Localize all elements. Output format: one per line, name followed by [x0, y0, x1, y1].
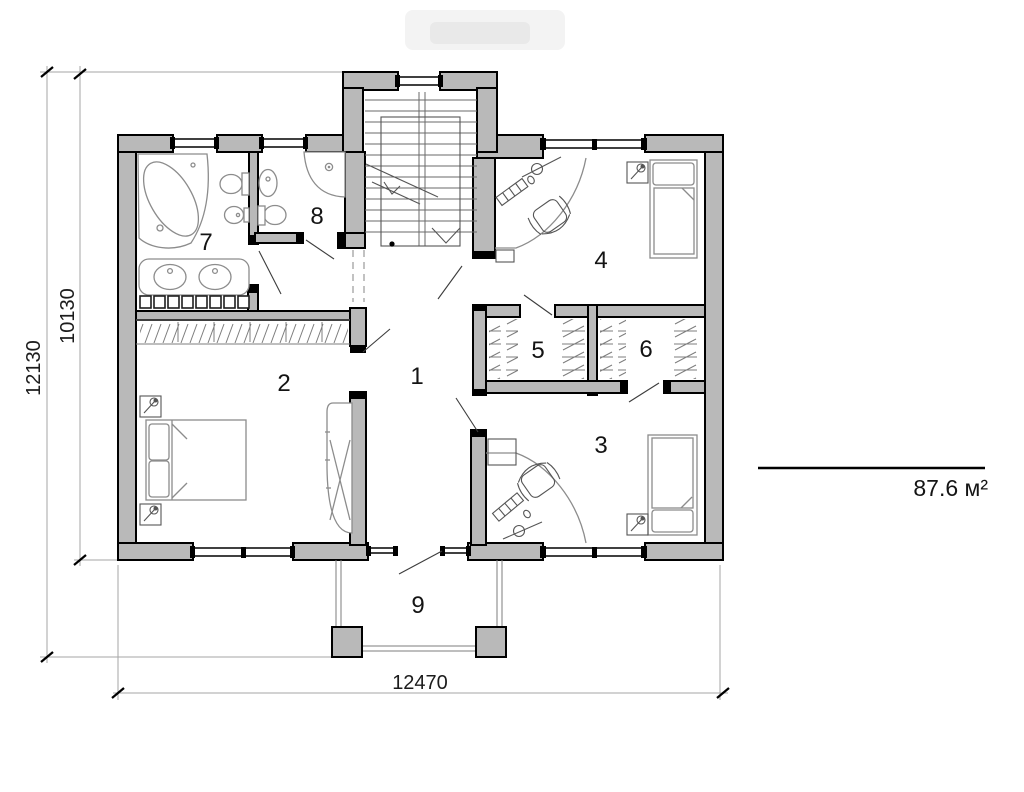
corner-wardrobe: [325, 403, 352, 533]
room-label-closet6: 6: [639, 336, 652, 363]
single-bed: [650, 160, 697, 258]
door-leader-closet5: [524, 295, 552, 315]
dimension-bottom: 12470: [392, 672, 448, 694]
door-leader-room2: [363, 329, 390, 352]
watermark: [405, 10, 565, 50]
door-leader-room8: [306, 240, 334, 259]
corner-bathtub: [132, 153, 209, 248]
desk-zone: [495, 157, 586, 262]
room-label-bath7: 7: [199, 229, 212, 256]
bedroom-2: [136, 320, 352, 533]
desk-lamp: [522, 157, 561, 177]
room-label-bedroom2: 2: [277, 370, 290, 397]
door-leader-room3: [456, 398, 478, 432]
window-top-left-1: [170, 137, 219, 149]
floor-plan-drawing: 12130 10130 12470 87.6 м²: [0, 0, 1024, 792]
wall-sink: [259, 170, 277, 197]
dimension-left-outer: 12130: [23, 340, 45, 396]
corner-shower: [304, 152, 345, 197]
toilet: [220, 173, 249, 195]
door-leader-porch: [399, 551, 442, 574]
window-top-left-2: [259, 137, 308, 149]
room-label-closet5: 5: [531, 337, 544, 364]
room-label-porch9: 9: [411, 592, 424, 619]
bathroom-cabinet-row: [140, 296, 249, 308]
nightstand-lamp: [140, 396, 161, 417]
floor-plan-page: 12130 10130 12470 87.6 м²: [0, 0, 1024, 792]
area-label: 87.6 м²: [913, 475, 988, 501]
desk-zone: [486, 439, 586, 543]
keyboard: [493, 493, 524, 521]
area-note: 87.6 м²: [758, 468, 988, 501]
single-bed: [648, 435, 697, 535]
nightstand-lamp: [627, 162, 648, 183]
nightstand-lamp: [140, 504, 161, 525]
room-label-bedroom4: 4: [594, 247, 607, 274]
porch-door-sidelights: [366, 546, 471, 556]
double-sink-vanity: [139, 259, 249, 295]
room-label-bedroom3: 3: [594, 432, 607, 459]
bidet: [225, 207, 250, 224]
dimension-left-inner: 10130: [57, 288, 79, 344]
bathroom-8: [258, 152, 345, 225]
door-leader-room4: [438, 266, 462, 299]
window-bottom-left: [190, 546, 295, 558]
window-top-right: [540, 138, 647, 150]
window-stairwell: [395, 75, 443, 87]
porch-column-right: [476, 627, 506, 657]
toilet: [258, 206, 286, 226]
bathroom-7: [132, 153, 249, 308]
room-label-bath8: 8: [310, 203, 323, 230]
mouse: [526, 175, 535, 185]
mouse: [522, 509, 532, 519]
desk-chair: [526, 194, 576, 241]
stair-break-line: [366, 164, 438, 204]
porch-column-left: [332, 627, 362, 657]
open-wardrobe-rail: [136, 320, 350, 344]
window-bottom-right: [540, 546, 647, 558]
nightstand-lamp: [627, 514, 648, 535]
door-leaders: [259, 240, 659, 574]
door-leader-closet6: [629, 383, 659, 402]
bedroom-3: [486, 435, 697, 543]
desk-lamp: [503, 522, 542, 539]
keyboard: [496, 179, 528, 206]
staircase: [365, 92, 477, 247]
door-leader-room7: [259, 251, 281, 294]
room-label-hall: 1: [410, 363, 423, 390]
double-bed: [146, 420, 246, 500]
